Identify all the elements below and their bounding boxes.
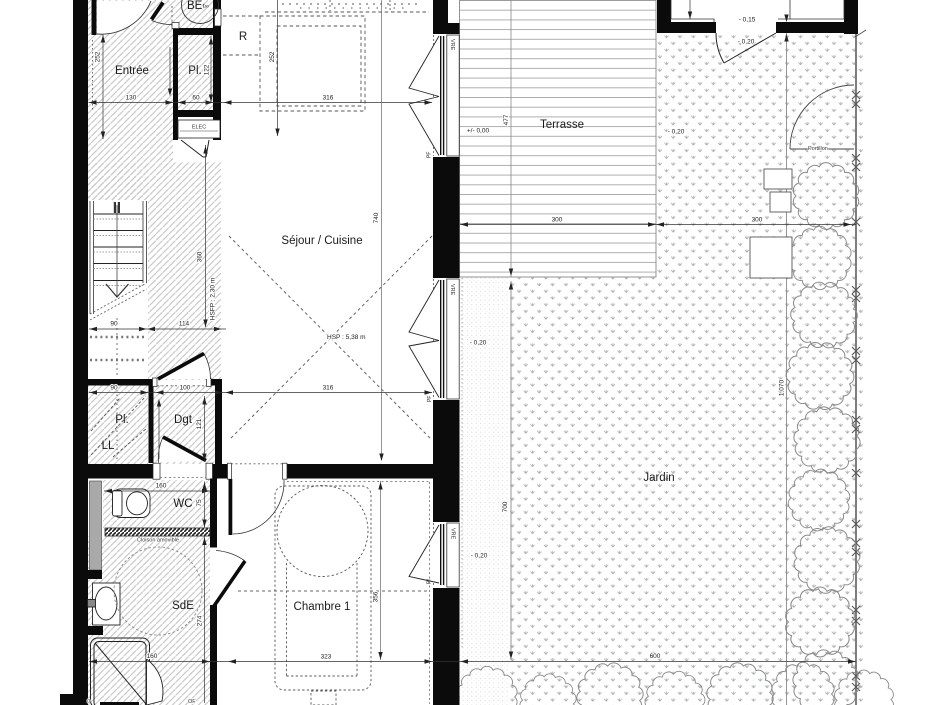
svg-text:300: 300: [552, 217, 563, 224]
svg-text:274: 274: [197, 615, 204, 626]
svg-text:0: 0: [87, 699, 90, 705]
svg-text:- 0,20: - 0,20: [668, 129, 685, 136]
svg-text:+/- 0,00: +/- 0,00: [467, 128, 490, 135]
svg-text:Portillon: Portillon: [808, 146, 828, 152]
svg-text:WC: WC: [173, 498, 192, 510]
svg-text:160: 160: [147, 653, 158, 660]
svg-text:Séjour / Cuisine: Séjour / Cuisine: [281, 235, 362, 247]
svg-text:252: 252: [269, 51, 276, 62]
svg-text:316: 316: [323, 95, 334, 102]
svg-text:700: 700: [502, 501, 509, 512]
svg-text:90: 90: [110, 385, 118, 392]
svg-text:1.070: 1.070: [779, 379, 786, 396]
svg-text:121: 121: [196, 418, 203, 429]
svg-text:477: 477: [503, 114, 510, 125]
svg-text:300: 300: [752, 217, 763, 224]
svg-text:VRE: VRE: [449, 284, 455, 296]
svg-text:130: 130: [126, 95, 137, 102]
svg-text:740: 740: [373, 212, 380, 223]
svg-text:100: 100: [180, 385, 191, 392]
svg-text:PF: PF: [427, 152, 433, 158]
svg-text:Entrée: Entrée: [115, 65, 149, 77]
svg-text:SdE: SdE: [172, 600, 194, 612]
svg-text:Dgt: Dgt: [174, 414, 193, 426]
svg-text:t∞: t∞: [203, 4, 209, 10]
svg-text:316: 316: [323, 385, 334, 392]
svg-text:- 0,20: - 0,20: [738, 39, 755, 46]
svg-text:HSP : 5,38 m: HSP : 5,38 m: [327, 334, 366, 341]
svg-text:Chambre 1: Chambre 1: [294, 601, 351, 613]
svg-text:BE: BE: [187, 0, 203, 12]
svg-text:160: 160: [156, 483, 167, 490]
svg-text:90: 90: [110, 321, 118, 328]
svg-text:PF: PF: [427, 396, 433, 402]
svg-text:Terrasse: Terrasse: [540, 119, 584, 131]
svg-text:323: 323: [321, 654, 332, 661]
svg-text:Pl.: Pl.: [115, 414, 128, 426]
svg-text:OF: OF: [188, 699, 196, 705]
svg-text:Cloison amovible: Cloison amovible: [137, 538, 179, 544]
svg-text:- 0,15: - 0,15: [739, 17, 756, 24]
svg-text:75: 75: [196, 499, 203, 507]
svg-text:- 0,20: - 0,20: [471, 553, 488, 560]
svg-text:114: 114: [179, 321, 190, 328]
svg-text:LL: LL: [102, 440, 115, 452]
svg-text:- 0,20: - 0,20: [470, 340, 487, 347]
svg-text:Jardin: Jardin: [643, 472, 674, 484]
svg-text:Pl.: Pl.: [188, 65, 201, 77]
svg-text:356: 356: [373, 591, 380, 602]
svg-text:360: 360: [197, 251, 204, 262]
svg-text:252: 252: [95, 51, 102, 62]
svg-text:122: 122: [204, 64, 211, 75]
svg-text:VRE: VRE: [449, 39, 455, 51]
svg-text:R: R: [239, 31, 247, 43]
svg-text:ELEC: ELEC: [192, 125, 206, 131]
svg-text:60: 60: [192, 95, 200, 102]
svg-text:600: 600: [650, 653, 661, 660]
svg-text:HSFP : 2,30 m: HSFP : 2,30 m: [210, 278, 217, 321]
svg-text:VRE: VRE: [450, 528, 456, 540]
